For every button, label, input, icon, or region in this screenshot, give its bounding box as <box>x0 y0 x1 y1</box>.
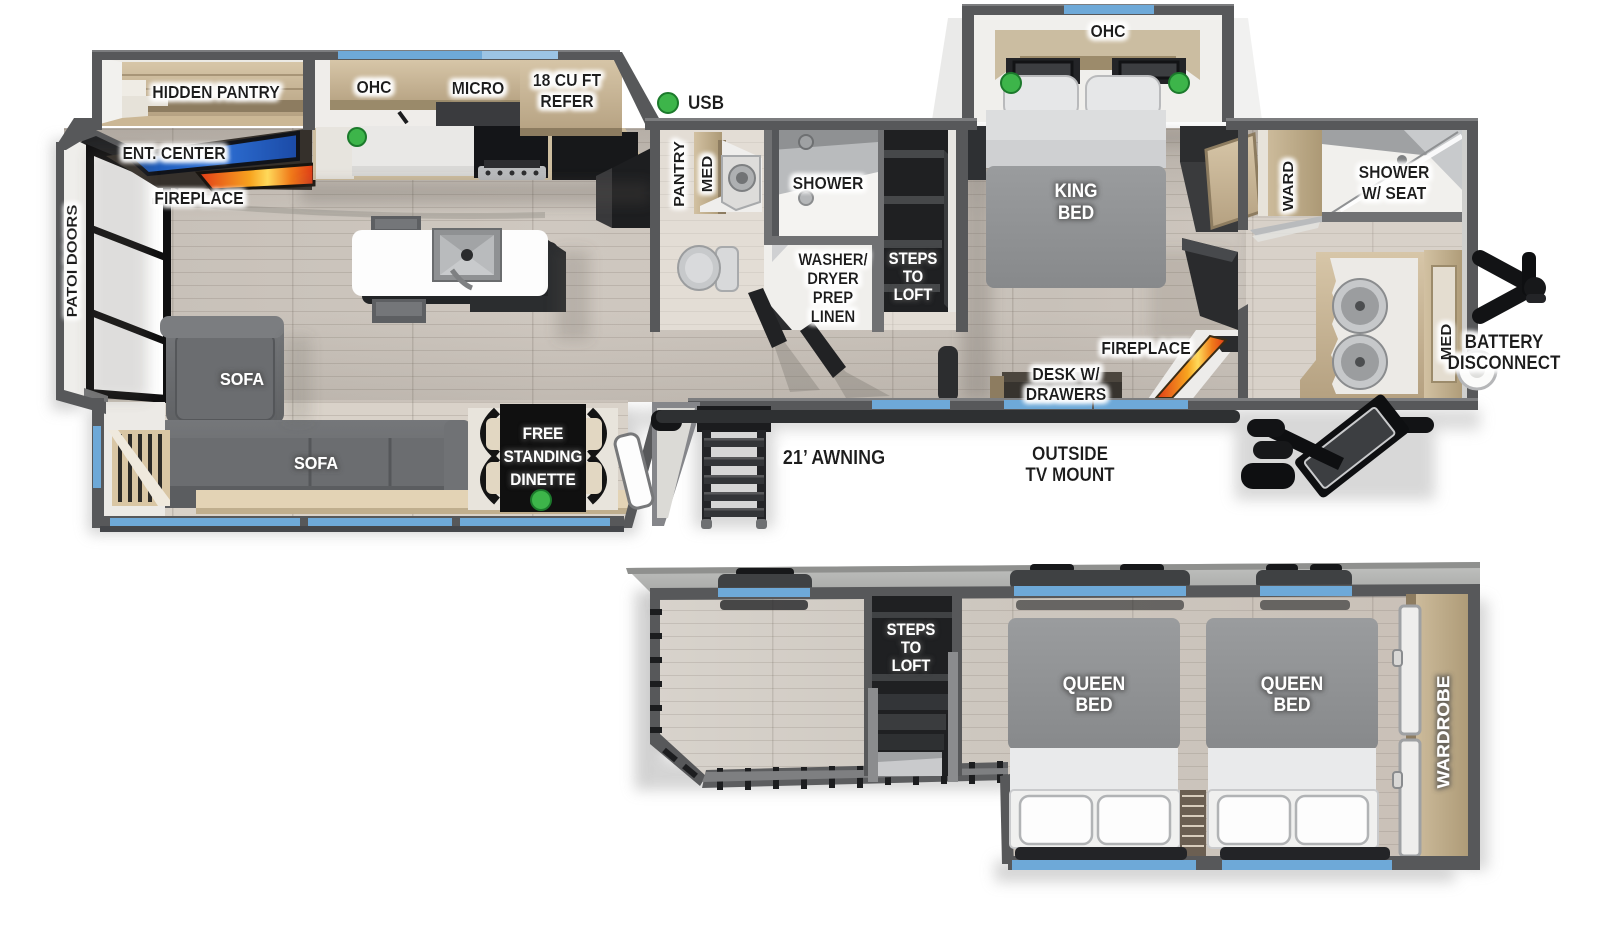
svg-text:MICRO: MICRO <box>452 78 504 98</box>
svg-text:FREE: FREE <box>523 424 564 443</box>
svg-text:OHC: OHC <box>357 77 392 97</box>
svg-text:OUTSIDE: OUTSIDE <box>1032 443 1108 464</box>
svg-text:DINETTE: DINETTE <box>510 470 576 489</box>
svg-text:BED: BED <box>1075 693 1112 715</box>
svg-text:WARDROBE: WARDROBE <box>1434 676 1453 789</box>
svg-text:DRYER: DRYER <box>807 270 858 288</box>
svg-text:USB: USB <box>688 92 724 113</box>
svg-text:LOFT: LOFT <box>892 657 931 675</box>
svg-text:HIDDEN PANTRY: HIDDEN PANTRY <box>152 82 280 102</box>
svg-text:DISCONNECT: DISCONNECT <box>1448 352 1561 373</box>
svg-text:PANTRY: PANTRY <box>672 140 688 207</box>
svg-text:QUEEN: QUEEN <box>1261 672 1323 694</box>
svg-text:21’ AWNING: 21’ AWNING <box>783 447 885 469</box>
svg-text:STANDING: STANDING <box>504 447 583 466</box>
svg-text:STEPS: STEPS <box>887 621 936 639</box>
svg-text:KING: KING <box>1055 180 1098 201</box>
svg-text:DESK W/: DESK W/ <box>1032 364 1100 384</box>
svg-text:ENT. CENTER: ENT. CENTER <box>122 143 225 163</box>
svg-text:TV MOUNT: TV MOUNT <box>1025 464 1114 485</box>
svg-text:WARD: WARD <box>1281 161 1297 211</box>
svg-text:OHC: OHC <box>1091 21 1126 41</box>
svg-text:W/ SEAT: W/ SEAT <box>1362 183 1426 203</box>
svg-text:BED: BED <box>1058 202 1094 223</box>
svg-text:TO: TO <box>903 268 923 286</box>
svg-text:PATOI DOORS: PATOI DOORS <box>65 205 81 318</box>
svg-text:SOFA: SOFA <box>220 369 264 389</box>
svg-text:STEPS: STEPS <box>889 250 938 268</box>
svg-text:SOFA: SOFA <box>294 453 338 473</box>
svg-text:REFER: REFER <box>540 91 593 111</box>
svg-text:BED: BED <box>1273 693 1310 715</box>
svg-text:WASHER/: WASHER/ <box>798 251 868 269</box>
svg-text:PREP: PREP <box>813 289 853 307</box>
svg-text:DRAWERS: DRAWERS <box>1026 384 1106 404</box>
svg-text:QUEEN: QUEEN <box>1063 672 1125 694</box>
svg-text:FIREPLACE: FIREPLACE <box>1101 338 1190 358</box>
svg-text:LINEN: LINEN <box>811 308 856 326</box>
svg-text:LOFT: LOFT <box>894 286 933 304</box>
svg-text:TO: TO <box>901 639 921 657</box>
svg-text:SHOWER: SHOWER <box>1359 162 1430 182</box>
svg-text:18 CU FT: 18 CU FT <box>533 70 601 90</box>
svg-text:BATTERY: BATTERY <box>1465 331 1544 352</box>
svg-text:FIREPLACE: FIREPLACE <box>154 188 243 208</box>
svg-text:MED: MED <box>700 156 716 193</box>
svg-text:SHOWER: SHOWER <box>793 173 864 193</box>
